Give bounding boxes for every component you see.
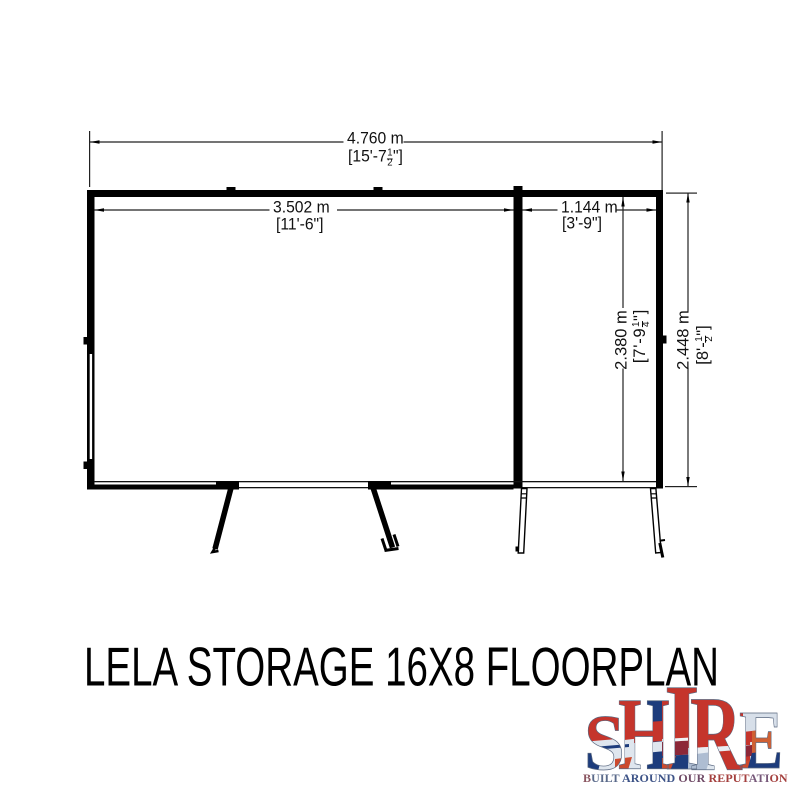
svg-text:LELA STORAGE 16X8 FLOORPLAN: LELA STORAGE 16X8 FLOORPLAN <box>84 637 719 698</box>
